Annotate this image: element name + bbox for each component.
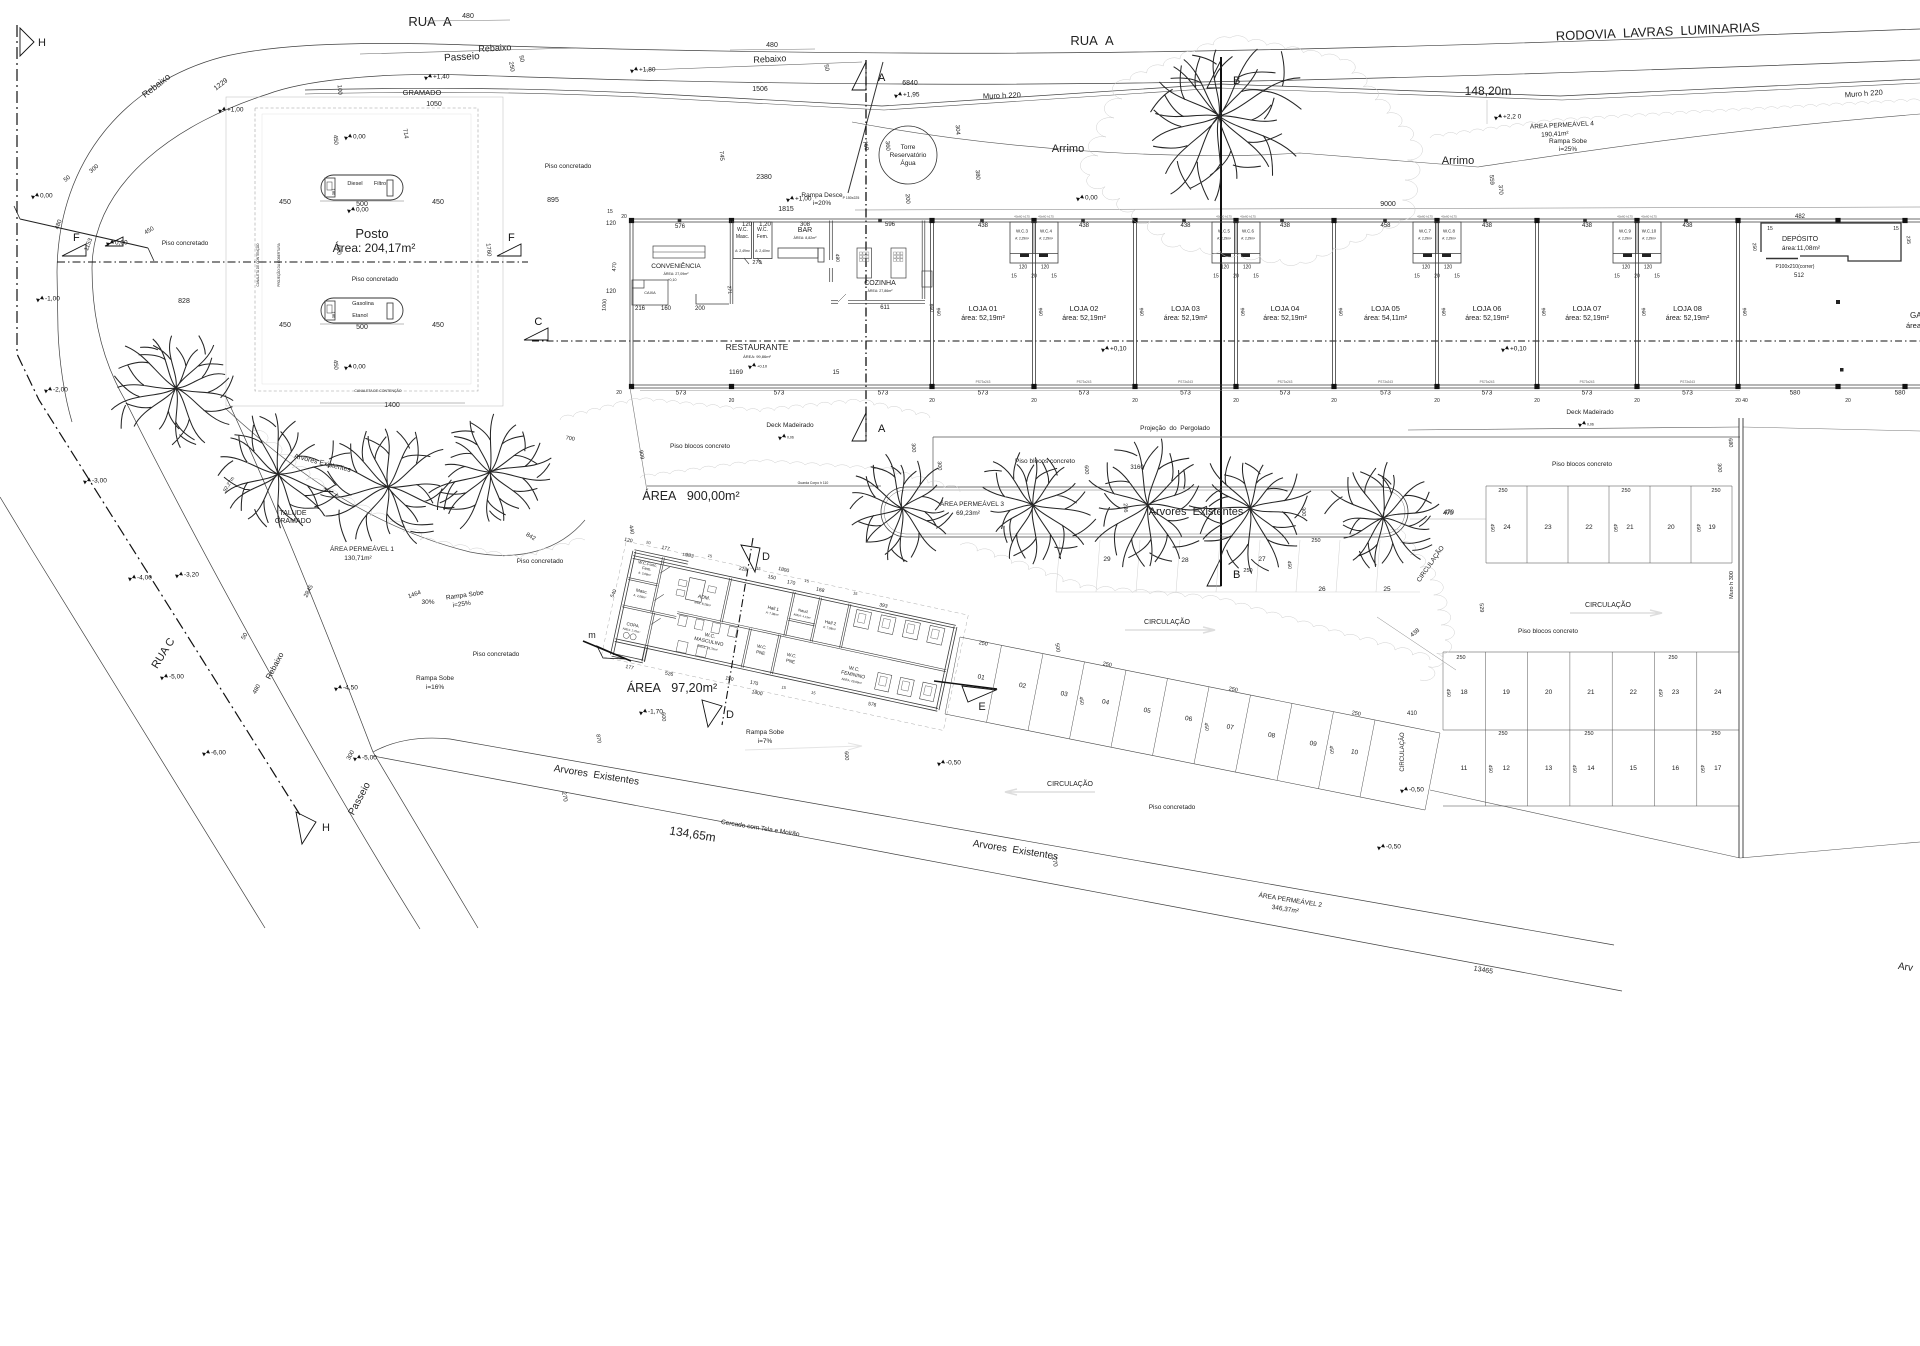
svg-text:559: 559 (1488, 175, 1495, 186)
svg-text:680: 680 (1727, 438, 1734, 448)
svg-text:22: 22 (1630, 689, 1638, 696)
svg-text:450: 450 (1695, 523, 1702, 532)
svg-text:69,23m²: 69,23m² (956, 510, 981, 517)
svg-text:BAR: BAR (798, 227, 812, 234)
svg-text:0,00: 0,00 (1085, 195, 1098, 202)
svg-text:Rebaixo: Rebaixo (478, 42, 512, 54)
svg-text:250: 250 (1711, 731, 1720, 737)
svg-text:20: 20 (1667, 524, 1675, 531)
svg-text:COZINHA: COZINHA (864, 280, 896, 287)
svg-text:370: 370 (1497, 185, 1504, 196)
svg-text:Piso concretado: Piso concretado (473, 651, 520, 658)
svg-text:W.C.4: W.C.4 (1040, 229, 1053, 234)
svg-text:960: 960 (1540, 307, 1547, 316)
svg-text:GRAMADO: GRAMADO (403, 88, 442, 97)
svg-text:W.C.10: W.C.10 (1642, 229, 1657, 234)
svg-text:19: 19 (1708, 524, 1716, 531)
svg-text:580: 580 (1895, 390, 1906, 397)
svg-text:H: H (322, 822, 330, 834)
svg-text:500: 500 (356, 324, 368, 331)
svg-text:Piso blocos concreto: Piso blocos concreto (670, 443, 730, 450)
svg-text:960: 960 (1337, 307, 1344, 316)
svg-text:960: 960 (1640, 307, 1647, 316)
svg-text:15: 15 (1454, 274, 1460, 280)
svg-text:15: 15 (1051, 274, 1057, 280)
svg-text:A: 2,29m²: A: 2,29m² (1241, 237, 1255, 241)
svg-text:Passeio: Passeio (444, 51, 481, 64)
svg-text:20: 20 (621, 214, 627, 220)
svg-text:960: 960 (1037, 307, 1044, 316)
svg-text:+1,80: +1,80 (639, 67, 656, 74)
svg-text:438: 438 (1180, 223, 1191, 229)
svg-text:CIRCULAÇÃO: CIRCULAÇÃO (1585, 600, 1631, 609)
svg-text:450: 450 (1487, 764, 1494, 773)
svg-text:-2,00: -2,00 (53, 387, 68, 394)
svg-text:W.C.8: W.C.8 (1443, 229, 1456, 234)
svg-text:W.C.5: W.C.5 (1218, 229, 1231, 234)
svg-text:24: 24 (1714, 689, 1722, 696)
svg-text:11: 11 (1461, 765, 1468, 772)
svg-text:15: 15 (1893, 226, 1899, 232)
svg-text:15: 15 (1767, 226, 1773, 232)
svg-text:250: 250 (1456, 655, 1465, 661)
svg-text:410: 410 (1407, 711, 1418, 717)
svg-text:40x60 h175: 40x60 h175 (1014, 215, 1030, 219)
svg-text:24: 24 (1503, 524, 1511, 531)
svg-text:PS73x243: PS73x243 (1580, 380, 1595, 384)
svg-text:A: 2,29m²: A: 2,29m² (1618, 237, 1632, 241)
svg-text:LOJA 07: LOJA 07 (1573, 304, 1602, 313)
svg-text:área: 52,19m²: área: 52,19m² (961, 315, 1005, 322)
svg-text:Reservatório: Reservatório (890, 152, 927, 159)
svg-text:40x60 h175: 40x60 h175 (1617, 215, 1633, 219)
svg-text:LOJA 06: LOJA 06 (1473, 304, 1502, 313)
svg-text:28: 28 (1181, 557, 1189, 564)
svg-text:20: 20 (1434, 274, 1440, 280)
svg-text:15: 15 (1614, 274, 1620, 280)
svg-text:+1,40: +1,40 (433, 74, 450, 81)
svg-text:Fem.: Fem. (757, 234, 768, 240)
svg-text:C: C (534, 316, 542, 328)
svg-text:-0,50: -0,50 (946, 760, 961, 767)
svg-text:área: 52,19m²: área: 52,19m² (1565, 315, 1609, 322)
svg-text:Rampa Sobe: Rampa Sobe (416, 675, 454, 682)
svg-text:Piso concretado: Piso concretado (545, 163, 592, 170)
svg-text:RESTAURANTE: RESTAURANTE (726, 342, 789, 352)
svg-text:-3,00: -3,00 (92, 478, 107, 485)
svg-text:A: 2,29m²: A: 2,29m² (1039, 237, 1053, 241)
svg-text:100: 100 (336, 85, 343, 96)
svg-text:Rampa Desce: Rampa Desce (801, 192, 843, 199)
svg-text:+0,10: +0,10 (1110, 346, 1127, 353)
svg-text:PS73x243: PS73x243 (976, 380, 991, 384)
svg-text:120: 120 (1444, 265, 1453, 271)
svg-text:450: 450 (332, 360, 339, 371)
svg-text:512: 512 (1794, 273, 1805, 279)
svg-text:960: 960 (928, 303, 935, 312)
svg-text:235: 235 (1905, 235, 1912, 244)
svg-text:Filtro: Filtro (374, 181, 386, 187)
svg-text:20: 20 (1031, 274, 1037, 280)
svg-text:área: 52,19m²: área: 52,19m² (1164, 315, 1208, 322)
svg-text:-5,00: -5,00 (169, 674, 184, 681)
svg-text:Arv: Arv (1897, 961, 1914, 974)
svg-text:PS73x243: PS73x243 (1480, 380, 1495, 384)
svg-text:6840: 6840 (902, 80, 918, 87)
svg-text:A: 2,29m²: A: 2,29m² (1217, 237, 1231, 241)
svg-text:Muro h 220: Muro h 220 (983, 90, 1021, 100)
svg-text:Diesel: Diesel (347, 181, 362, 187)
svg-text:ÁREA PERMEÁVEL 3: ÁREA PERMEÁVEL 3 (940, 499, 1004, 508)
svg-text:F: F (508, 232, 515, 244)
svg-text:ÁREA: 99,86m²: ÁREA: 99,86m² (743, 354, 771, 359)
svg-text:LOJA 08: LOJA 08 (1673, 304, 1702, 313)
svg-text:304: 304 (954, 125, 961, 136)
svg-text:20: 20 (1233, 398, 1239, 404)
svg-text:450: 450 (332, 135, 339, 146)
svg-text:600: 600 (335, 245, 342, 256)
svg-text:área: 52,19m²: área: 52,19m² (1666, 315, 1710, 322)
svg-text:200: 200 (904, 194, 911, 205)
svg-text:F: F (73, 232, 80, 244)
svg-text:12: 12 (1503, 765, 1511, 772)
svg-text:DEPÓSITO: DEPÓSITO (1782, 234, 1819, 243)
svg-text:LOJA 02: LOJA 02 (1070, 304, 1099, 313)
svg-text:130,71m²: 130,71m² (344, 555, 372, 562)
svg-text:250: 250 (1711, 488, 1720, 494)
svg-text:190: 190 (331, 188, 337, 196)
svg-text:20: 20 (1634, 274, 1640, 280)
svg-text:LOJA 03: LOJA 03 (1171, 304, 1200, 313)
svg-text:Área: 204,17m²: Área: 204,17m² (333, 240, 416, 255)
svg-text:160: 160 (661, 306, 672, 312)
svg-text:895: 895 (547, 197, 559, 204)
svg-text:RUA A: RUA A (1070, 33, 1114, 48)
svg-text:450: 450 (1445, 688, 1452, 697)
svg-text:Etanol: Etanol (352, 313, 368, 319)
svg-text:380: 380 (974, 170, 981, 181)
svg-text:Deck Madeirado: Deck Madeirado (766, 422, 814, 429)
svg-text:W.C.3: W.C.3 (1016, 229, 1029, 234)
svg-text:250: 250 (1584, 731, 1593, 737)
svg-text:ÁREA: 27,86m²: ÁREA: 27,86m² (868, 289, 894, 293)
svg-text:450: 450 (279, 322, 291, 329)
svg-text:480: 480 (766, 42, 778, 49)
svg-text:15: 15 (1630, 765, 1638, 772)
svg-text:i=20%: i=20% (813, 200, 831, 207)
svg-text:área:2: área:2 (1906, 321, 1920, 330)
svg-text:i=25%: i=25% (1559, 146, 1577, 153)
svg-text:20: 20 (929, 398, 935, 404)
svg-text:250: 250 (1621, 488, 1630, 494)
svg-text:ÁREA: 8,82m²: ÁREA: 8,82m² (794, 236, 818, 240)
svg-text:40: 40 (1742, 398, 1748, 404)
svg-text:960: 960 (1239, 307, 1246, 316)
svg-text:250: 250 (1668, 655, 1677, 661)
svg-text:828: 828 (178, 298, 190, 305)
svg-text:438: 438 (1682, 223, 1693, 229)
svg-text:área: 52,19m²: área: 52,19m² (1062, 315, 1106, 322)
svg-text:23: 23 (1672, 689, 1680, 696)
svg-text:1506: 1506 (752, 86, 768, 93)
svg-text:+0,10: +0,10 (1510, 346, 1527, 353)
svg-text:360: 360 (884, 141, 891, 152)
svg-text:148,20m: 148,20m (1465, 84, 1512, 98)
svg-text:Projeção do Pergolado: Projeção do Pergolado (1140, 425, 1210, 432)
svg-text:438: 438 (1582, 223, 1593, 229)
svg-text:9000: 9000 (1380, 201, 1396, 208)
svg-text:Piso concretado: Piso concretado (162, 240, 209, 247)
svg-text:1169: 1169 (729, 369, 743, 376)
svg-text:15: 15 (1414, 274, 1420, 280)
svg-text:Torre: Torre (901, 144, 916, 151)
svg-text:26: 26 (1318, 586, 1326, 593)
svg-text:19: 19 (1503, 689, 1511, 696)
svg-text:20: 20 (729, 398, 735, 404)
svg-text:CIRCULAÇÃO: CIRCULAÇÃO (1399, 732, 1406, 772)
svg-text:A: 2,29m²: A: 2,29m² (1418, 237, 1432, 241)
svg-text:190: 190 (331, 311, 337, 319)
svg-text:120: 120 (1243, 265, 1252, 271)
svg-text:Deck Madeirado: Deck Madeirado (1566, 409, 1614, 416)
svg-text:ÁREA: 27,09m²: ÁREA: 27,09m² (664, 272, 690, 276)
svg-text:40x60 h175: 40x60 h175 (1240, 215, 1256, 219)
svg-text:Rampa Sobe: Rampa Sobe (1549, 138, 1587, 145)
svg-text:20: 20 (1534, 398, 1540, 404)
svg-text:Muro h 300: Muro h 300 (1729, 571, 1735, 599)
svg-text:-0,50: -0,50 (1386, 844, 1401, 851)
svg-text:120: 120 (606, 221, 617, 227)
svg-text:20: 20 (616, 390, 622, 396)
svg-text:A: 2,29m²: A: 2,29m² (1442, 237, 1456, 241)
svg-text:GAL: GAL (1910, 311, 1920, 320)
svg-text:PS73x243: PS73x243 (1680, 380, 1695, 384)
svg-text:40x60 h175: 40x60 h175 (1216, 215, 1232, 219)
svg-text:596: 596 (885, 222, 896, 228)
svg-text:40x60 h175: 40x60 h175 (1441, 215, 1457, 219)
svg-text:17: 17 (1714, 765, 1722, 772)
svg-text:0,00: 0,00 (353, 134, 366, 141)
svg-text:20: 20 (1634, 398, 1640, 404)
svg-text:D: D (762, 551, 770, 563)
svg-text:250: 250 (1311, 538, 1320, 544)
svg-text:450: 450 (1612, 523, 1619, 532)
svg-text:0,06: 0,06 (787, 436, 794, 440)
svg-text:E: E (978, 701, 985, 713)
svg-text:600: 600 (660, 712, 667, 722)
svg-text:Piso blocos concreto: Piso blocos concreto (1552, 461, 1612, 468)
svg-text:CANALETA DE CONTENÇÃO: CANALETA DE CONTENÇÃO (255, 243, 260, 286)
svg-text:-1,00: -1,00 (45, 296, 60, 303)
svg-text:15: 15 (1011, 274, 1017, 280)
svg-text:-5,00: -5,00 (362, 755, 377, 762)
svg-text:482: 482 (1795, 214, 1806, 220)
svg-text:438: 438 (1482, 223, 1493, 229)
svg-text:Posto: Posto (355, 226, 388, 241)
svg-text:P100x210(correr): P100x210(correr) (1776, 264, 1815, 270)
svg-text:PS73x243: PS73x243 (1378, 380, 1393, 384)
svg-text:área:11,08m²: área:11,08m² (1782, 245, 1821, 252)
svg-text:470: 470 (1443, 511, 1454, 517)
svg-text:30%: 30% (421, 599, 434, 606)
svg-text:RUA A: RUA A (408, 14, 452, 29)
svg-text:40x60 h175: 40x60 h175 (1641, 215, 1657, 219)
svg-text:600: 600 (1083, 465, 1090, 475)
svg-text:1000: 1000 (601, 299, 608, 312)
svg-text:216: 216 (635, 306, 646, 312)
svg-text:0,00: 0,00 (353, 364, 366, 371)
svg-text:LOJA 04: LOJA 04 (1271, 304, 1300, 313)
svg-text:CONVENIÊNCIA: CONVENIÊNCIA (651, 261, 701, 270)
svg-text:área: 52,19m²: área: 52,19m² (1263, 315, 1307, 322)
svg-text:120: 120 (1041, 265, 1050, 271)
svg-text:300: 300 (1300, 507, 1307, 517)
svg-text:A: 2,40m²: A: 2,40m² (755, 249, 771, 253)
svg-text:A: A (878, 72, 886, 84)
svg-text:+0,10: +0,10 (757, 364, 768, 369)
svg-text:450: 450 (1286, 560, 1293, 569)
svg-text:-3,20: -3,20 (184, 572, 199, 579)
svg-text:120: 120 (1221, 265, 1230, 271)
svg-text:470: 470 (612, 262, 619, 272)
svg-text:438: 438 (1079, 223, 1090, 229)
svg-text:Arrimo: Arrimo (1442, 155, 1474, 167)
svg-text:450: 450 (1657, 688, 1664, 697)
svg-text:270: 270 (752, 260, 761, 266)
svg-text:450: 450 (1699, 764, 1706, 773)
svg-text:200: 200 (695, 306, 706, 312)
svg-text:27: 27 (1258, 556, 1266, 563)
svg-text:16: 16 (1672, 765, 1680, 772)
svg-text:Piso concretado: Piso concretado (517, 558, 564, 565)
svg-text:ÁREA PERMEÁVEL 1: ÁREA PERMEÁVEL 1 (330, 544, 394, 553)
svg-text:0,06: 0,06 (1587, 423, 1594, 427)
svg-text:D: D (726, 709, 734, 721)
svg-text:+2,2 0: +2,2 0 (1503, 114, 1522, 121)
svg-text:271: 271 (726, 285, 733, 294)
svg-text:308: 308 (800, 222, 811, 228)
svg-text:ÁREA 97,20m²: ÁREA 97,20m² (627, 680, 717, 695)
svg-text:1815: 1815 (778, 206, 794, 213)
svg-text:21: 21 (1626, 524, 1634, 531)
svg-text:Piso blocos concreto: Piso blocos concreto (1015, 458, 1075, 465)
svg-text:A: 2,29m²: A: 2,29m² (1642, 237, 1656, 241)
svg-text:15: 15 (1253, 274, 1259, 280)
svg-text:área: 52,19m²: área: 52,19m² (1465, 315, 1509, 322)
svg-text:250: 250 (1498, 488, 1507, 494)
svg-text:13: 13 (1545, 765, 1553, 772)
svg-text:W.C.6: W.C.6 (1242, 229, 1255, 234)
svg-text:120: 120 (606, 289, 617, 295)
svg-text:+0,10: +0,10 (667, 278, 676, 282)
svg-text:-0,50: -0,50 (1409, 787, 1424, 794)
svg-text:529: 529 (1478, 603, 1485, 613)
svg-text:250: 250 (1498, 731, 1507, 737)
svg-text:PROJEÇÃO DA COBERTURA: PROJEÇÃO DA COBERTURA (276, 242, 281, 286)
svg-text:120: 120 (1622, 265, 1631, 271)
svg-text:P 150x225: P 150x225 (843, 196, 860, 200)
svg-text:15: 15 (833, 370, 840, 376)
svg-text:i=16%: i=16% (426, 684, 444, 691)
svg-text:CIRCULAÇÃO: CIRCULAÇÃO (1144, 617, 1190, 626)
svg-text:PS73x243: PS73x243 (1178, 380, 1193, 384)
svg-text:CIRCULAÇÃO: CIRCULAÇÃO (1047, 779, 1093, 788)
svg-text:14: 14 (1587, 765, 1595, 772)
svg-text:Masc.: Masc. (736, 234, 749, 240)
svg-text:Arrimo: Arrimo (1052, 143, 1084, 155)
svg-text:A: A (878, 423, 886, 435)
svg-text:-6,00: -6,00 (211, 750, 226, 757)
svg-text:CANALETA DE CONTENÇÃO: CANALETA DE CONTENÇÃO (354, 388, 401, 393)
svg-text:+1,95: +1,95 (903, 92, 920, 99)
svg-text:576: 576 (675, 224, 686, 230)
svg-text:745: 745 (718, 151, 725, 162)
svg-text:Rampa Sobe: Rampa Sobe (746, 729, 784, 736)
svg-text:20: 20 (1545, 689, 1553, 696)
svg-text:580: 580 (1790, 390, 1801, 397)
svg-text:1050: 1050 (426, 101, 442, 108)
svg-text:A: 2,49m²: A: 2,49m² (735, 249, 751, 253)
svg-text:+1,00: +1,00 (227, 107, 244, 114)
svg-text:480: 480 (462, 13, 474, 20)
svg-text:H: H (38, 37, 46, 49)
svg-text:20: 20 (1331, 398, 1337, 404)
svg-text:i=7%: i=7% (758, 738, 773, 745)
svg-text:Piso concretado: Piso concretado (1149, 804, 1196, 811)
svg-text:W.C.7: W.C.7 (1419, 229, 1432, 234)
svg-text:480: 480 (834, 253, 841, 262)
svg-text:960: 960 (935, 307, 942, 316)
svg-text:250: 250 (1751, 242, 1758, 251)
svg-text:0,00: 0,00 (356, 207, 369, 214)
svg-text:960: 960 (1741, 307, 1748, 316)
svg-text:438: 438 (978, 223, 989, 229)
svg-text:20: 20 (1735, 398, 1741, 404)
svg-text:Água: Água (900, 158, 916, 167)
svg-text:120: 120 (1422, 265, 1431, 271)
svg-text:438: 438 (1280, 223, 1291, 229)
svg-text:29: 29 (1103, 556, 1111, 563)
svg-text:20: 20 (1233, 274, 1239, 280)
svg-text:21: 21 (1587, 689, 1595, 696)
svg-text:120: 120 (1019, 265, 1028, 271)
svg-text:CAIXA: CAIXA (644, 291, 656, 295)
svg-text:2380: 2380 (756, 174, 772, 181)
svg-text:Rebaixo: Rebaixo (753, 53, 787, 65)
svg-text:22: 22 (1585, 524, 1593, 531)
svg-text:área: 54,11m²: área: 54,11m² (1364, 315, 1408, 322)
svg-text:960: 960 (1138, 307, 1145, 316)
svg-text:15: 15 (1654, 274, 1660, 280)
svg-text:PS73x243: PS73x243 (1077, 380, 1092, 384)
svg-text:Guarda Corpo h 110: Guarda Corpo h 110 (798, 481, 829, 485)
svg-text:450: 450 (1571, 764, 1578, 773)
svg-text:600: 600 (843, 751, 850, 761)
svg-text:120: 120 (1644, 265, 1653, 271)
svg-text:18: 18 (1460, 689, 1468, 696)
svg-text:-4,00: -4,00 (137, 575, 152, 582)
svg-text:LOJA 01: LOJA 01 (969, 304, 998, 313)
svg-text:GRAMADO: GRAMADO (275, 518, 312, 525)
svg-text:23: 23 (1544, 524, 1552, 531)
svg-text:A: 2,29m²: A: 2,29m² (1015, 237, 1029, 241)
svg-text:25: 25 (1383, 586, 1391, 593)
svg-text:LOJA 05: LOJA 05 (1371, 304, 1400, 313)
svg-text:PS73x243: PS73x243 (1278, 380, 1293, 384)
svg-text:450: 450 (1489, 523, 1496, 532)
svg-text:ÁREA 900,00m²: ÁREA 900,00m² (642, 488, 739, 503)
svg-text:Piso concretado: Piso concretado (352, 276, 399, 283)
